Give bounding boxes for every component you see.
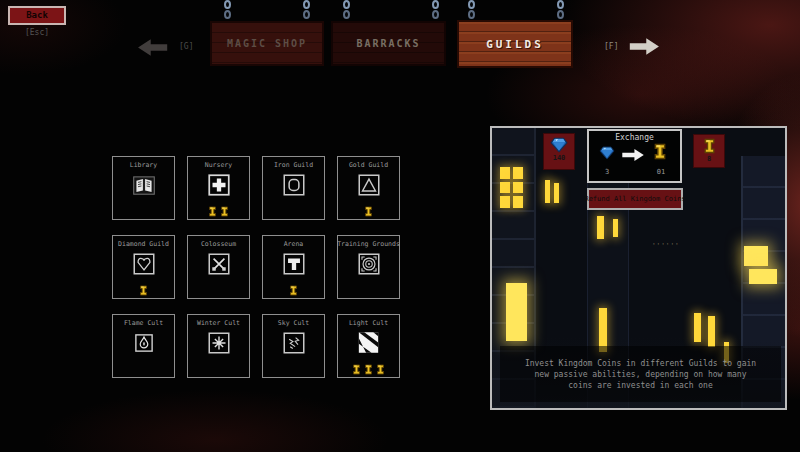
exchange-box[interactable]: Exchange 3 01 [587,129,682,183]
guild-cell-library[interactable]: Library [112,156,175,220]
gem-balance-value: 140 [553,154,566,162]
invested-coins [338,364,399,375]
kingdom-coin-icon [139,285,148,296]
gem-icon [599,146,615,160]
next-tab-arrow-icon[interactable] [629,37,661,56]
window-glow [545,180,550,203]
guild-cell-winter-cult[interactable]: Winter Cult [187,314,250,378]
prev-tab-shortcut-label: [G] [179,42,193,51]
window-glow [694,313,701,342]
chain-icon [343,0,350,20]
guild-name-label: Arena [284,240,304,248]
window-glow [749,269,777,284]
guild-name-label: Flame Cult [124,319,163,327]
kingdom-coin-icon [208,206,217,217]
guilds-description: Invest Kingdom Coins in different Guilds… [500,346,781,402]
hammer-icon [281,251,307,277]
light-stripes-icon [354,330,383,357]
chain-icon [303,0,310,20]
prev-tab-arrow-icon[interactable] [136,38,168,57]
guild-cell-training-grounds[interactable]: Training Grounds [337,235,400,299]
crossed-swords-icon [206,251,232,277]
guild-name-label: Light Cult [349,319,388,327]
window-glow [500,167,523,208]
window-glow [613,219,618,237]
description-line: coins are invested in each one [568,381,713,390]
lightning-icon [281,330,307,356]
guild-cell-iron-guild[interactable]: Iron Guild [262,156,325,220]
cross-icon [206,172,232,198]
tab-guilds[interactable]: GUILDS [457,20,573,68]
guild-name-label: Gold Guild [349,161,388,169]
chain-icon [224,0,231,20]
guild-cell-nursery[interactable]: Nursery [187,156,250,220]
flame-icon [131,330,157,356]
coin-balance-value: 8 [707,155,711,163]
guild-name-label: Diamond Guild [118,240,169,248]
guild-name-label: Winter Cult [197,319,240,327]
tab-barracks[interactable]: BARRACKS [331,21,446,66]
kingdom-coin-icon [289,285,298,296]
kingdom-coin-icon [364,364,373,375]
diamond-icon [131,251,157,277]
chain-icon [557,0,564,20]
back-button[interactable]: Back [8,6,66,25]
kingdom-coin-icon [352,364,361,375]
guild-cell-arena[interactable]: Arena [262,235,325,299]
guild-cell-sky-cult[interactable]: Sky Cult [262,314,325,378]
kingdom-coin-icon [703,138,716,154]
snowflake-icon [206,330,232,356]
chain-icon [432,0,439,20]
guild-cell-gold-guild[interactable]: Gold Guild [337,156,400,220]
description-line: new passive abilities, depending on how … [535,370,747,379]
invested-coins [263,285,324,296]
gem-icon [550,137,568,153]
guild-name-label: Colosseum [201,240,236,248]
guild-cell-colosseum[interactable]: Colosseum [187,235,250,299]
window-glow [744,246,768,266]
guild-cell-diamond-guild[interactable]: Diamond Guild [112,235,175,299]
guild-name-label: Nursery [205,161,232,169]
chain-icon [468,0,475,20]
guild-name-label: Training Grounds [337,240,400,248]
guild-name-label: Sky Cult [278,319,309,327]
book-icon [131,172,157,198]
kingdom-coin-icon [653,143,667,160]
guild-name-label: Library [130,161,157,169]
kingdom-coin-icon [376,364,385,375]
guild-detail-panel: ······ 140 Exchange 3 01 8 Refund All Ki… [490,126,787,410]
next-tab-shortcut-label: [F] [604,42,618,51]
invested-coins [338,206,399,217]
invested-coins [188,206,249,217]
triangle-icon [356,172,382,198]
guild-cell-light-cult[interactable]: Light Cult [337,314,400,378]
refund-all-button[interactable]: Refund All Kingdom Coins [587,188,683,210]
invested-coins [113,285,174,296]
target-icon [356,251,382,277]
guild-grid: Library Nursery Iron Guild Gold Guild Di… [112,156,400,378]
exchange-coin-gain: 01 [643,168,679,176]
iron-plate-icon [281,172,307,198]
guilds-screen: Back [Esc] [G] [F] MAGIC SHOP BARRACKS G… [0,0,800,452]
coin-balance-badge: 8 [693,134,725,168]
tab-magic-shop[interactable]: MAGIC SHOP [210,21,324,66]
window-glow [506,283,527,341]
back-shortcut-label: [Esc] [8,28,66,37]
guild-name-label: Iron Guild [274,161,313,169]
description-line: Invest Kingdom Coins in different Guilds… [525,359,756,368]
kingdom-coin-icon [220,206,229,217]
exchange-title: Exchange [589,133,680,142]
window-glow [708,316,715,347]
kingdom-coin-icon [364,206,373,217]
right-arrow-icon [621,148,646,162]
gem-balance-badge: 140 [543,133,575,170]
window-glow [597,216,604,239]
scene-dots: ······ [652,240,680,247]
guild-cell-flame-cult[interactable]: Flame Cult [112,314,175,378]
exchange-gem-cost: 3 [589,168,625,176]
window-glow [554,183,559,203]
